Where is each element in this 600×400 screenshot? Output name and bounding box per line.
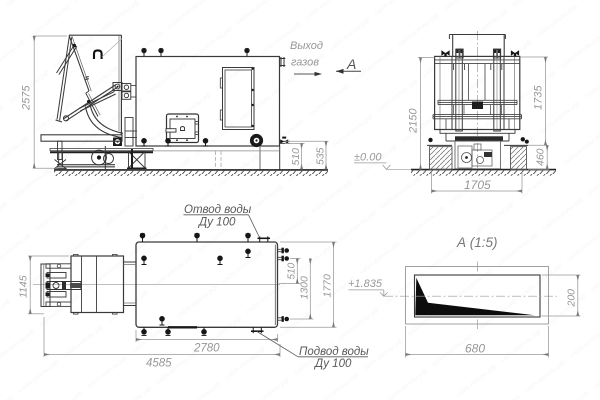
svg-text:Ду 100: Ду 100 — [313, 358, 352, 370]
svg-text:1300: 1300 — [299, 276, 311, 300]
svg-text:±0.00: ±0.00 — [354, 152, 382, 164]
svg-text:2575: 2575 — [21, 85, 33, 111]
svg-text:510: 510 — [287, 262, 298, 279]
svg-text:460: 460 — [535, 148, 547, 166]
svg-text:Отвод воды: Отвод воды — [184, 204, 252, 216]
svg-text:680: 680 — [465, 342, 485, 356]
svg-text:Подвод воды: Подвод воды — [299, 346, 369, 358]
svg-text:1735: 1735 — [533, 85, 545, 110]
svg-text:1705: 1705 — [464, 178, 491, 192]
svg-text:+1.835: +1.835 — [348, 278, 383, 290]
svg-text:200: 200 — [566, 289, 578, 308]
svg-text:1770: 1770 — [322, 274, 334, 298]
svg-text:2780: 2780 — [193, 343, 220, 355]
svg-text:535: 535 — [315, 147, 327, 165]
svg-text:Выход: Выход — [290, 40, 323, 52]
svg-text:А (1:5): А (1:5) — [456, 235, 498, 250]
svg-text:2150: 2150 — [408, 108, 420, 134]
svg-text:510: 510 — [290, 148, 302, 166]
svg-text:газов: газов — [291, 57, 319, 69]
svg-text:4585: 4585 — [146, 358, 172, 370]
svg-text:А: А — [346, 56, 356, 72]
svg-text:1145: 1145 — [18, 275, 30, 298]
svg-text:Ду 100: Ду 100 — [197, 217, 236, 229]
